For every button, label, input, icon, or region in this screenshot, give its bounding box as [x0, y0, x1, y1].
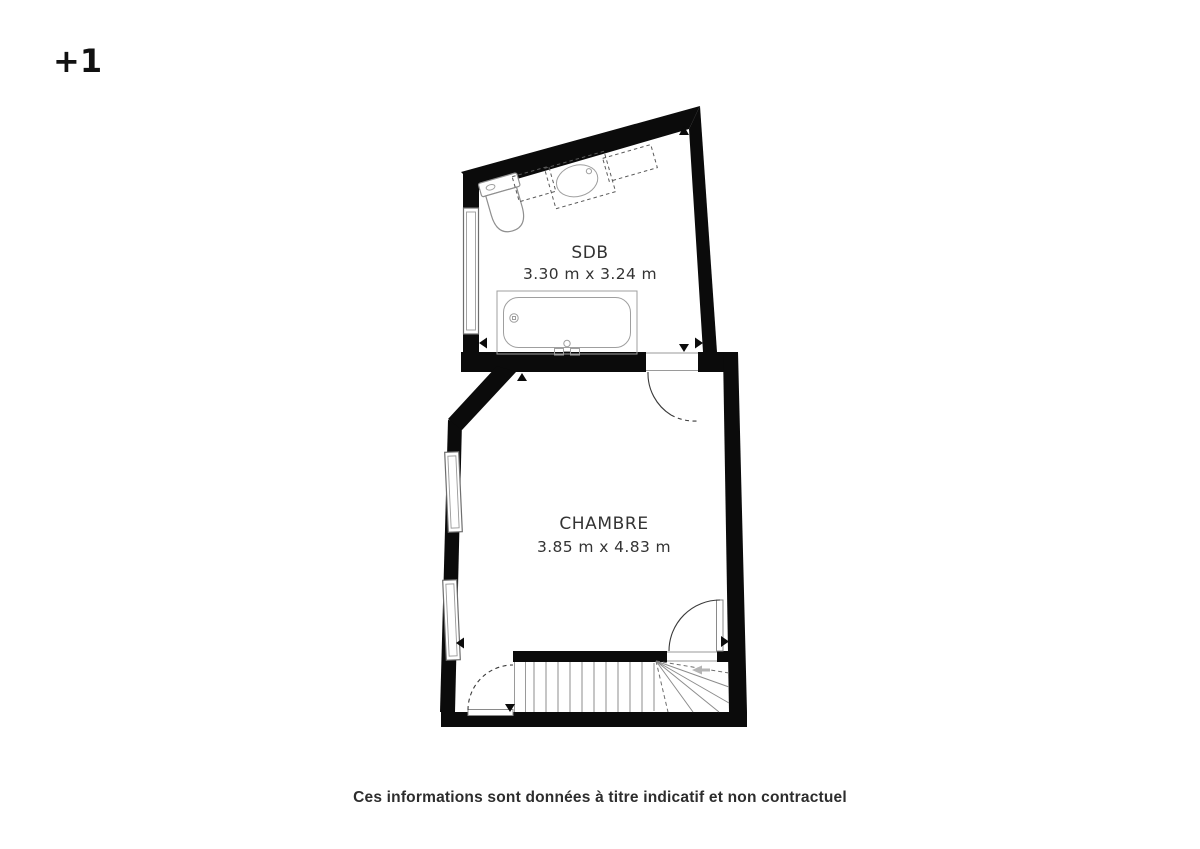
- chambre-left-window-lower: [443, 580, 461, 661]
- sdb-right-wall: [689, 106, 717, 352]
- sdb-dim-bottom-arrow: [679, 344, 689, 352]
- stairs-left-door-opening: [514, 662, 527, 712]
- stair-treads: [534, 662, 654, 712]
- floor-plan-svg: [0, 0, 1200, 849]
- disclaimer-text: Ces informations sont données à titre in…: [0, 789, 1200, 807]
- chambre-room-dimensions: 3.85 m x 4.83 m: [454, 536, 754, 558]
- chambre-stairs-left-door: [468, 665, 513, 716]
- bathtub: [497, 291, 637, 355]
- sdb-room-dimensions: 3.30 m x 3.24 m: [440, 264, 740, 284]
- toilet: [478, 173, 532, 237]
- sdb-dim-left-arrow: [479, 338, 487, 349]
- chambre-dim-top-arrow: [517, 373, 527, 381]
- chambre-room-name: CHAMBRE: [454, 513, 754, 535]
- sdb-room-label: SDB 3.30 m x 3.24 m: [440, 243, 740, 284]
- stairs: [534, 661, 729, 712]
- stair-winders: [656, 661, 729, 712]
- stair-direction-arrow: [692, 666, 710, 675]
- stairs-right-door-opening: [667, 651, 717, 662]
- sdb-to-chambre-door: [648, 372, 697, 421]
- sdb-door-opening: [646, 352, 698, 373]
- chambre-diagonal-wall: [448, 366, 516, 430]
- stair-top-wall: [513, 651, 667, 662]
- stair-right-corner: [717, 651, 733, 662]
- floor-level-label: +1: [53, 42, 102, 80]
- floor-plan-canvas: +1 SDB 3.30 m x 3.24 m CHAMBRE 3.85 m x …: [0, 0, 1200, 849]
- sdb-top-wall: [461, 106, 700, 190]
- chambre-stairs-right-door: [669, 600, 723, 651]
- sdb-room-name: SDB: [440, 243, 740, 263]
- walls: [440, 106, 747, 727]
- sdb-dim-right-arrow: [695, 338, 703, 349]
- chambre-room-label: CHAMBRE 3.85 m x 4.83 m: [454, 513, 754, 558]
